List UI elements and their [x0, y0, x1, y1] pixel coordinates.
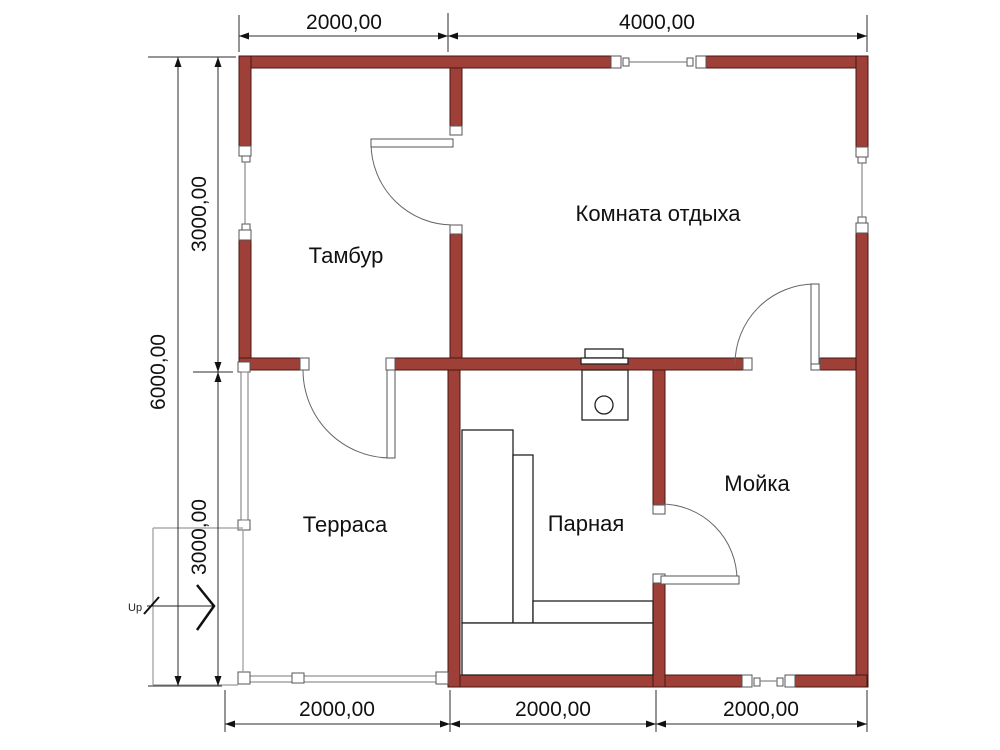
bench-bottom-step: [533, 601, 653, 623]
door-lounge-washroom: [735, 284, 819, 364]
dim-label-top-left: 2000,00: [306, 11, 382, 34]
door2-cap: [386, 358, 395, 370]
door4-cap: [653, 505, 665, 514]
stove-burner: [595, 396, 613, 414]
railing-post: [436, 672, 448, 684]
window-top-cap: [611, 56, 621, 68]
door3-cap: [743, 358, 752, 370]
door-swing-arc: [735, 284, 815, 364]
window-left-post: [242, 156, 250, 162]
wall-steamroom-left: [448, 370, 460, 687]
wall-divider-lower: [450, 234, 462, 358]
dim-label-top-right: 4000,00: [619, 11, 695, 34]
railing-post: [292, 673, 304, 683]
door-leaf: [811, 284, 819, 364]
terrace-window-cap: [238, 362, 250, 372]
railing-rail: [250, 676, 436, 682]
stove-chimney-top: [585, 349, 623, 358]
dim-arrow: [440, 721, 450, 728]
door2-cap: [300, 358, 309, 370]
door-leaf: [661, 576, 739, 584]
wall-washroom-left-lower: [653, 583, 665, 687]
dim-label-left-total: 6000,00: [147, 334, 170, 410]
dim-label-bottom-2: 2000,00: [515, 698, 591, 721]
window-right-post: [858, 217, 866, 223]
door1-cap: [450, 126, 462, 135]
stove-flange: [581, 358, 628, 364]
up-arrow-label: Up: [128, 602, 142, 614]
dim-arrow: [857, 33, 867, 40]
floor-plan-canvas: Up Тамбур Комнат: [0, 0, 1000, 750]
wall-left-upper: [239, 56, 251, 146]
window-top-cap: [696, 56, 706, 68]
window-left-post: [242, 224, 250, 230]
window-bottom-cap: [785, 675, 795, 687]
room-label-terrace: Терраса: [303, 512, 388, 537]
up-arrow-chevron: [197, 585, 214, 630]
door-washroom-steamroom: [661, 504, 739, 584]
door-swing-arc: [661, 504, 737, 580]
window-right-cap: [856, 147, 868, 157]
door-vestibule-terrace: [303, 370, 395, 458]
dim-label-left-upper: 3000,00: [188, 176, 211, 252]
wall-top-left-segment: [239, 56, 611, 68]
dim-arrow: [215, 362, 222, 372]
wall-left-middle: [239, 240, 251, 358]
wall-bottom-right-segment: [795, 675, 867, 687]
dim-arrow: [448, 33, 458, 40]
dim-arrow: [225, 721, 235, 728]
door-leaf: [371, 139, 453, 147]
wall-right-lower: [856, 233, 868, 687]
walls: [239, 56, 868, 687]
stairs-direction-arrow: Up: [128, 585, 214, 630]
room-label-lounge: Комната отдыха: [576, 201, 742, 226]
floor-plan-drawing: Up Тамбур Комнат: [0, 0, 1000, 750]
railing-post: [238, 672, 250, 684]
dim-arrow: [656, 721, 666, 728]
dim-arrow: [215, 57, 222, 67]
wall-middle-center: [395, 358, 743, 370]
terrace-window-panel: [241, 372, 248, 520]
window-bottom-post: [777, 678, 783, 686]
door-swing-arc: [303, 370, 391, 458]
wall-divider-upper: [450, 68, 462, 126]
window-glazing: [245, 62, 862, 681]
wall-bottom-left-segment: [448, 675, 742, 687]
sauna-stove: [581, 349, 628, 420]
room-label-vestibule: Тамбур: [309, 243, 384, 268]
door-vestibule-lounge: [371, 139, 453, 225]
dim-arrow: [450, 721, 460, 728]
bench-left-wide: [462, 430, 513, 623]
wall-washroom-left-upper: [653, 370, 665, 505]
dim-arrow: [239, 33, 249, 40]
steamroom-benches: [462, 430, 653, 675]
window-right-cap: [856, 223, 868, 233]
window-bottom-post: [754, 678, 760, 686]
window-top-post: [623, 58, 629, 66]
dim-arrow: [175, 57, 182, 67]
dim-arrow: [646, 721, 656, 728]
jamb-caps: [238, 56, 868, 687]
bench-bottom-wide: [462, 623, 653, 675]
dim-label-left-lower: 3000,00: [188, 499, 211, 575]
window-left-cap: [239, 146, 251, 156]
dim-arrow: [438, 33, 448, 40]
room-label-steamroom: Парная: [548, 511, 625, 536]
door-swing-arc: [371, 143, 453, 225]
window-right-post: [858, 157, 866, 163]
dim-arrow: [215, 372, 222, 382]
dim-label-bottom-3: 2000,00: [723, 698, 799, 721]
door-leaf: [387, 370, 395, 458]
window-top-post: [687, 58, 693, 66]
window-left-cap: [239, 230, 251, 240]
dim-arrow: [857, 721, 867, 728]
window-bottom-cap: [742, 675, 752, 687]
terrace-railing: [238, 530, 448, 684]
room-label-washroom: Мойка: [724, 471, 790, 496]
dim-label-bottom-1: 2000,00: [299, 698, 375, 721]
door1-cap: [450, 225, 462, 234]
wall-right-upper: [856, 56, 868, 147]
bench-left-step: [513, 455, 533, 623]
wall-middle-right-stub: [820, 358, 856, 370]
wall-top-right-segment: [706, 56, 867, 68]
